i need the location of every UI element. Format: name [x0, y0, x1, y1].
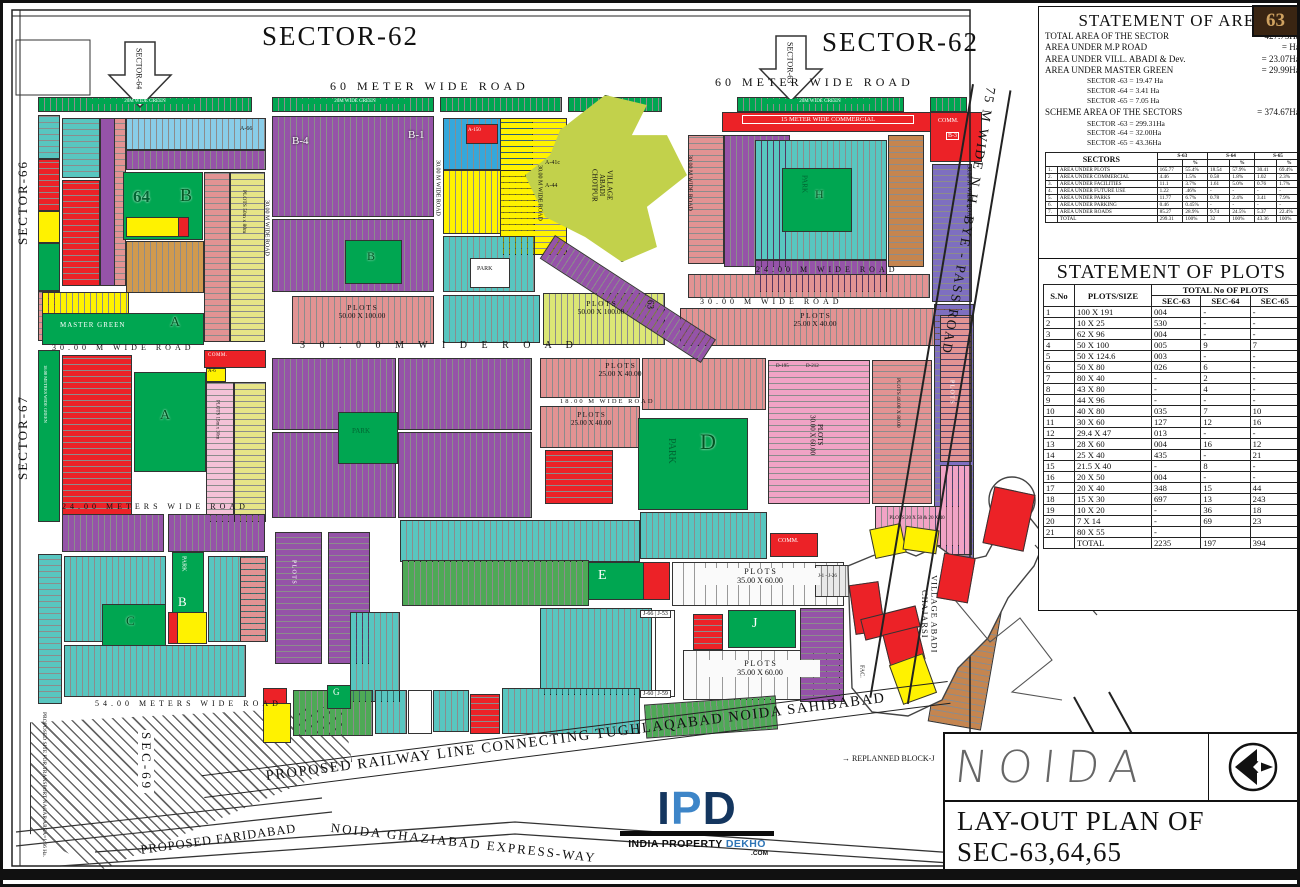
plots-cell: 7 [1201, 406, 1250, 417]
plot-block [408, 690, 432, 734]
sector-66-label: SECTOR-66 [16, 160, 30, 245]
comm-block [466, 124, 498, 144]
plots-cell: 3 [1044, 329, 1075, 340]
area-row-label: AREA UNDER VILL. ABADI & Dev. [1045, 54, 1186, 65]
plot-block [126, 118, 266, 150]
green-strip [930, 97, 967, 112]
comm-block [770, 533, 818, 557]
plots-cell: - [1201, 318, 1250, 329]
plots-cell: 19 [1044, 505, 1075, 516]
plots-cell: 80 X 40 [1075, 373, 1152, 384]
road-30m-vlabel: 30.00 M WIDE ROAD [263, 200, 269, 300]
area-row-label: AREA UNDER M.P ROAD [1045, 42, 1147, 53]
plots-cell: 15 [1044, 461, 1075, 472]
plot-block [177, 612, 207, 644]
sectors-cell: - [1277, 187, 1300, 194]
park-g-label: G [333, 688, 340, 698]
plots-cell: 23 [1250, 516, 1299, 527]
plots-cell: 18 [1250, 505, 1299, 516]
sectors-cell: AREA UNDER FACILITIES [1057, 180, 1157, 187]
plots-cell: - [1250, 384, 1299, 395]
plots-cell: 14 [1044, 450, 1075, 461]
plots-cell: 348 [1152, 483, 1201, 494]
road-30m-main-label: 3 0 . 0 0 M W I D E R O A D [300, 341, 579, 352]
sectors-col-s63: S-63 [1157, 152, 1207, 159]
sectors-row: 7.AREA UNDER ROADS85.2728.9%9.7424.5%5.3… [1046, 208, 1300, 215]
sectors-cell: 2.4% [1230, 194, 1255, 201]
plots-cell: 100 X 191 [1075, 307, 1152, 318]
block-a2-label: A [160, 408, 170, 423]
plots-cell: 394 [1250, 538, 1299, 549]
plots-cell: 15 X 30 [1075, 494, 1152, 505]
plots-cell: 197 [1201, 538, 1250, 549]
fac-label: FAC. [858, 665, 864, 678]
plots-cell: - [1152, 395, 1201, 406]
plots-row: 1425 X 40435-21 [1044, 450, 1300, 461]
replanned-block-j-label: → REPLANNED BLOCK-J [842, 755, 934, 764]
sectors-cell: 4.46 [1157, 173, 1183, 180]
park-block-j [728, 610, 796, 648]
plots-cell: 13 [1201, 494, 1250, 505]
sectors-row: 3.AREA UNDER FACILITIES11.13.7%1.615.0%0… [1046, 180, 1300, 187]
sectors-cell: 24.5% [1230, 208, 1255, 215]
plots-row: 1910 X 20-3618 [1044, 505, 1300, 516]
plots-cell [1250, 527, 1299, 538]
sectors-cell: 165.77 [1157, 166, 1183, 173]
plots-15x30-label: PLOTS 15m x 30m [214, 400, 219, 439]
road-18m-label: 18.00 M WIDE ROAD [560, 398, 655, 405]
arrow-sector-64-label: SECTOR-64 [134, 48, 143, 89]
plots-cell: 1 [1044, 307, 1075, 318]
ipd-tagline-black: INDIA PROPERTY [628, 838, 726, 850]
plots-cell: 11 [1044, 417, 1075, 428]
plots-cell: 013 [1152, 428, 1201, 439]
plot-block [398, 358, 532, 430]
plot-block [443, 295, 540, 343]
sectors-cell: 5.37 [1254, 208, 1276, 215]
plot-block [375, 690, 407, 734]
layout-plan-canvas: SECTOR-62 SECTOR-62 SECTOR-64 SECTOR-63 … [0, 0, 1300, 887]
plots-cell [1044, 538, 1075, 549]
plot-block [400, 520, 640, 562]
plot-block [178, 217, 189, 237]
plots-row: 1328 X 600041612 [1044, 439, 1300, 450]
plots-cell: 12 [1250, 439, 1299, 450]
plots-cell: 20 [1044, 516, 1075, 527]
plots-table: S.No PLOTS/SIZE TOTAL No OF PLOTS SEC-63… [1043, 284, 1300, 549]
sectors-cell: AREA UNDER PARKS [1057, 194, 1157, 201]
plots-25x40-label: P L O T S 25.00 X 40.00 [548, 412, 634, 427]
plot-block [263, 703, 291, 743]
park-small-label: PARK [477, 266, 492, 272]
plot-block [230, 172, 265, 342]
sector-62-left-label: SECTOR-62 [262, 22, 419, 51]
plots-cell: 21.5 X 40 [1075, 461, 1152, 472]
plots-cell: 44 [1250, 483, 1299, 494]
pct-header: % [1183, 159, 1208, 166]
plots-cell: - [1152, 384, 1201, 395]
plots-h-sec64: SEC-64 [1201, 296, 1250, 307]
plots-cell: 4 [1201, 384, 1250, 395]
sectors-cell: 11.77 [1157, 194, 1183, 201]
plot-block [204, 172, 230, 342]
block-a41c-label: A-41c [545, 160, 560, 166]
area-row-value: = 23.07Ha. [1262, 54, 1300, 65]
village-chajarsi-label: VILLAGE ABADI CHAJARSI [920, 552, 938, 677]
comm-block [643, 562, 670, 600]
plots-cell: - [1250, 461, 1299, 472]
plots-cell: 80 X 55 [1075, 527, 1152, 538]
plots-cell: 10 [1250, 406, 1299, 417]
plots-cell: 697 [1152, 494, 1201, 505]
plot-block [888, 135, 924, 267]
plots-cell: 20 X 40 [1075, 483, 1152, 494]
plots-row: 1720 X 403481544 [1044, 483, 1300, 494]
plot-block [693, 614, 723, 650]
plots-cell: 7 [1250, 340, 1299, 351]
plots-cell: 243 [1250, 494, 1299, 505]
road-24meters-label: 24.00 METERS WIDE ROAD [62, 503, 249, 512]
plots-row: 362 X 96004-- [1044, 329, 1300, 340]
plot-block [640, 512, 767, 559]
plots-cell: - [1152, 516, 1201, 527]
area-row-value: = 29.99Ha. [1262, 65, 1300, 76]
sectors-cell [1046, 215, 1058, 222]
sectors-cell: 2. [1046, 173, 1058, 180]
plot-block [38, 211, 60, 243]
plots-cell: 8 [1201, 461, 1250, 472]
sectors-cell: 5.0% [1230, 180, 1255, 187]
plots-cell: 9 [1201, 340, 1250, 351]
sectors-cell: 1.5% [1183, 173, 1208, 180]
plots-cell: 25 X 40 [1075, 450, 1152, 461]
plots-cell: - [1201, 395, 1250, 406]
sectors-cell: 85.27 [1157, 208, 1183, 215]
plot-block [62, 180, 100, 286]
plots-cell: 12 [1201, 417, 1250, 428]
plots-cell: TOTAL [1075, 538, 1152, 549]
sectors-cell: 0.45% [1183, 201, 1208, 208]
sectors-table-header: SECTORS [1046, 152, 1158, 166]
park-b-label: B [367, 250, 375, 263]
sectors-cell: 1. [1046, 166, 1058, 173]
sectors-col-s65: S-65 [1254, 152, 1300, 159]
plots-h-total: TOTAL No OF PLOTS [1152, 285, 1300, 296]
block-64-label: 64 [133, 188, 150, 206]
plots-row: 650 X 800266- [1044, 362, 1300, 373]
comm-label: COMM. [938, 118, 959, 124]
sectors-row: 4.AREA UNDER FUTURE USE1.22.46%---- [1046, 187, 1300, 194]
title-line1: LAY-OUT PLAN OF [957, 806, 1285, 837]
plots-cell: 005 [1152, 340, 1201, 351]
plots-cell: 004 [1152, 307, 1201, 318]
sectors-cell: - [1277, 201, 1300, 208]
plot-block [64, 645, 246, 697]
plots-cell: 6 [1044, 362, 1075, 373]
sectors-cell: .46% [1183, 187, 1208, 194]
scheme-value: = 374.67Ha. [1257, 107, 1300, 118]
plots-cell: - [1250, 318, 1299, 329]
plots-cell: - [1152, 373, 1201, 384]
commercial-small-label: COMM. [208, 353, 228, 358]
sectors-cell: 5. [1046, 194, 1058, 201]
plots-h-sec65: SEC-65 [1250, 296, 1299, 307]
road-30m-label: 30.00 M WIDE ROAD [700, 298, 843, 307]
plot-block [688, 135, 724, 264]
plot-block [350, 612, 400, 702]
plot-block [655, 610, 675, 697]
plots-cell: - [1250, 373, 1299, 384]
road-54meters-label: 54.00 METERS WIDE ROAD [95, 700, 282, 709]
road-30m-vlabel: 30.00 M WIDE ROAD [536, 165, 542, 275]
plots-cell: - [1152, 505, 1201, 516]
sectors-cell: 1.02 [1254, 173, 1276, 180]
park-b2-label: B [178, 595, 187, 609]
sectors-cell: 3. [1046, 180, 1058, 187]
sectors-col-s64: S-64 [1208, 152, 1255, 159]
plots-cell: 5 [1044, 351, 1075, 362]
sectors-cell: - [1254, 201, 1276, 208]
plots-25x40-label: P L O T S 25.00 X 40.00 [740, 312, 890, 328]
plot-block [433, 690, 469, 732]
ipd-logo-text: IPD [612, 788, 782, 829]
block-a-label: A [170, 315, 180, 330]
plots-cell [1201, 527, 1250, 538]
plots-cell: - [1152, 461, 1201, 472]
plots-row: 210 X 25530-- [1044, 318, 1300, 329]
sectors-cell: AREA UNDER FUTURE USE [1057, 187, 1157, 194]
plots-cell: 2 [1201, 373, 1250, 384]
block-a66-label: A-66 [240, 126, 252, 132]
plots-cell: 2 [1044, 318, 1075, 329]
scheme-breakup: SECTOR -65 = 43.36Ha [1087, 138, 1300, 148]
title-line2: SEC-63,64,65 [957, 837, 1285, 868]
plot-block [126, 150, 266, 170]
plot-block [470, 694, 500, 734]
commercial-strip-label: 15 METER WIDE COMMERCIAL [742, 115, 914, 124]
plot-block [240, 556, 266, 642]
plots-50x100-label: P L O T S 50.00 X 100.00 [312, 304, 412, 320]
plot-block [545, 450, 613, 504]
plot-block [688, 274, 930, 298]
statement-of-plots-title: STATEMENT OF PLOTS [1043, 261, 1300, 284]
block-b4-label: B-4 [292, 136, 309, 148]
plot-block [275, 532, 322, 664]
plots-20x50-label: PLOTS 20 X 50 & 20 X 40 [877, 516, 957, 521]
plots-h-size: PLOTS/SIZE [1075, 285, 1152, 307]
plots-50x100-label: P L O T S 50.00 X 100.00 [556, 300, 646, 316]
sectors-cell: 1.7% [1277, 180, 1300, 187]
j1-j26-label: J-1 - J-26 [818, 574, 837, 579]
sectors-row: 5.AREA UNDER PARKS11.776.7%0.782.4%3.417… [1046, 194, 1300, 201]
sectors-cell: 6. [1046, 201, 1058, 208]
mg-breakup: SECTOR -64 = 3.41 Ha [1087, 86, 1300, 96]
plots-cell: 40 X 80 [1075, 406, 1152, 417]
sectors-cell: 43.36 [1254, 215, 1276, 222]
sec-69-label: SEC-69 [138, 730, 154, 793]
plots-cell: - [1201, 472, 1250, 483]
plots-cell: - [1201, 450, 1250, 461]
green-strip-label: 20M WIDE GREEN [300, 99, 410, 104]
plots-cell: 12 [1044, 428, 1075, 439]
noida-logo-text: NOIDA [952, 742, 1151, 793]
sector-62-right-label: SECTOR-62 [822, 28, 979, 57]
sectors-cell: AREA UNDER COMMERCIAL [1057, 173, 1157, 180]
plots-cell: 2235 [1152, 538, 1201, 549]
bottom-black-bar [0, 869, 1300, 880]
mg-breakup: SECTOR -63 = 19.47 Ha [1087, 76, 1300, 86]
plots-cell: 44 X 96 [1075, 395, 1152, 406]
plots-cell: 035 [1152, 406, 1201, 417]
plots-cell: - [1250, 428, 1299, 439]
sectors-cell: 0.76 [1254, 180, 1276, 187]
plots-row: 450 X 10000597 [1044, 340, 1300, 351]
plots-cell: - [1250, 472, 1299, 483]
statement-of-plots-panel: STATEMENT OF PLOTS S.No PLOTS/SIZE TOTAL… [1038, 258, 1300, 611]
plots-row: 207 X 14-6923 [1044, 516, 1300, 527]
sector-67-label: SECTOR-67 [16, 395, 30, 480]
plots-row: 1620 X 50004-- [1044, 472, 1300, 483]
sectors-cell: TOTAL [1057, 215, 1157, 222]
plots-cell: 13 [1044, 439, 1075, 450]
plots-cell: 43 X 80 [1075, 384, 1152, 395]
plots-cell: 9 [1044, 395, 1075, 406]
sectors-cell: 9.74 [1208, 208, 1230, 215]
plots-40x80-label: PLOTS 40.00 X 80.00 [894, 378, 900, 488]
plot-block [126, 217, 180, 237]
sectors-cell: 69.4% [1277, 166, 1300, 173]
plots-row: 2180 X 55- [1044, 527, 1300, 538]
plots-cell: 127 [1152, 417, 1201, 428]
sectors-cell: - [1230, 187, 1255, 194]
plots-cell: 435 [1152, 450, 1201, 461]
pct-header: % [1230, 159, 1255, 166]
plots-cell: - [1201, 307, 1250, 318]
sectors-cell: 32 [1208, 215, 1230, 222]
sectors-cell: - [1254, 187, 1276, 194]
plots-cell: 530 [1152, 318, 1201, 329]
sectors-cell: 1.22 [1157, 187, 1183, 194]
plots-cell: 18 [1044, 494, 1075, 505]
scheme-breakup: SECTOR -63 = 299.31Ha [1087, 119, 1300, 129]
expressway-label: NOIDA GHAZIABAD EXPRESS-WAY [330, 821, 597, 865]
sectors-cell: 11.1 [1157, 180, 1183, 187]
ipd-logo: IPD INDIA PROPERTY DEKHO .COM [612, 788, 782, 857]
sectors-cell: - [1208, 201, 1230, 208]
block-b3-label: B-3 [946, 132, 959, 140]
green-strip-label: 20M WIDE GREEN [765, 99, 875, 104]
master-green-label: MASTER GREEN [60, 322, 125, 330]
comm-label: COMM. [778, 538, 799, 544]
plots-table-body: 1100 X 191004--210 X 25530--362 X 96004-… [1044, 307, 1300, 549]
plots-row: 1040 X 80035710 [1044, 406, 1300, 417]
plots-cell: 004 [1152, 329, 1201, 340]
block-a44-label: A-44 [545, 183, 557, 189]
plots-35x60-label: P L O T S 35.00 X 60.00 [700, 568, 820, 585]
plot-d212-label: D-212 [806, 364, 819, 369]
park-block [338, 412, 398, 464]
j60-j59-label: J-60 | J-59 [640, 690, 671, 698]
plots-cell: 20 X 50 [1075, 472, 1152, 483]
plots-row: 1229.4 X 47013-- [1044, 428, 1300, 439]
scheme-label: SCHEME AREA OF THE SECTORS [1045, 107, 1182, 118]
plots-row: 1815 X 3069713243 [1044, 494, 1300, 505]
plots-row: 550 X 124.6003-- [1044, 351, 1300, 362]
plots-cell: 7 [1044, 373, 1075, 384]
plots-cell: 28 X 60 [1075, 439, 1152, 450]
sectors-cell: - [1230, 201, 1255, 208]
road-60m-left: 60 METER WIDE ROAD [330, 80, 529, 93]
road-30m-label: 30.00 M WIDE ROAD [52, 344, 195, 353]
sectors-cell: 0.78 [1208, 194, 1230, 201]
plots-50x80-label: PLOTS 50m x 80m [240, 190, 246, 233]
plot-block [38, 243, 60, 291]
plot-d195-label: D-195 [776, 364, 789, 369]
park-label: PARK [352, 428, 370, 436]
park-h-label: H [815, 188, 824, 201]
sectors-cell: 3.41 [1254, 194, 1276, 201]
sectors-cell: 100% [1230, 215, 1255, 222]
plots-cell: - [1250, 307, 1299, 318]
plots-cell: 10 [1044, 406, 1075, 417]
sectors-cell: 6.7% [1183, 194, 1208, 201]
plot-block [402, 560, 589, 606]
sectors-row: 2.AREA UNDER COMMERCIAL4.461.5%0.581.8%1… [1046, 173, 1300, 180]
road-30m-vlabel: 30.00 M WIDE ROAD [965, 165, 971, 285]
block-b-label: B [180, 186, 192, 205]
plots-cell: 69 [1201, 516, 1250, 527]
sectors-row: 6.AREA UNDER PARKING0.460.45%---- [1046, 201, 1300, 208]
plots-cell: 16 [1044, 472, 1075, 483]
sectors-cell: 55.4% [1183, 166, 1208, 173]
plot-block [38, 115, 60, 159]
road-60m-right: 60 METER WIDE ROAD [715, 76, 914, 89]
plots-row: 1100 X 191004-- [1044, 307, 1300, 318]
plot-block [62, 355, 132, 515]
sectors-cell: 1.8% [1230, 173, 1255, 180]
park-h-word: PARK [800, 175, 808, 193]
plots-word-label: P L O T S [948, 380, 954, 404]
plots-cell: - [1201, 428, 1250, 439]
j66-j53-label: J-66 | J-53 [640, 610, 671, 618]
plot-block [126, 241, 204, 293]
sectors-cell: 299.31 [1157, 215, 1183, 222]
plots-row: 780 X 40-2- [1044, 373, 1300, 384]
park-block [470, 258, 510, 288]
plots-row: 944 X 96--- [1044, 395, 1300, 406]
sectors-cell: 57.9% [1230, 166, 1255, 173]
plots-cell: 30 X 60 [1075, 417, 1152, 428]
park-d-word: PARK [665, 438, 676, 464]
block-a150-label: A-150 [468, 128, 481, 133]
plots-cell: 17 [1044, 483, 1075, 494]
plots-25x40-label: P L O T S 25.00 X 40.00 [560, 362, 680, 378]
plots-cell: 4 [1044, 340, 1075, 351]
plot-block [62, 514, 164, 552]
sectors-cell: 7.9% [1277, 194, 1300, 201]
plot-block [42, 292, 129, 314]
sectors-cell: 100% [1183, 215, 1208, 222]
plots-row: 1130 X 601271216 [1044, 417, 1300, 428]
sectors-cell: 7. [1046, 208, 1058, 215]
plots-row: 843 X 80-4- [1044, 384, 1300, 395]
transport-nagar-note: PROPOSED SITE FOR TRANSPORT NAGAR AREA=1… [40, 712, 46, 862]
plots-cell: 004 [1152, 472, 1201, 483]
plots-35x60-label: P L O T S 35.00 X 60.00 [700, 660, 820, 677]
mg-breakup: SECTOR -65 = 7.05 Ha [1087, 96, 1300, 106]
park-e-label: E [598, 568, 607, 583]
block-b1-label: B-1 [408, 130, 425, 142]
